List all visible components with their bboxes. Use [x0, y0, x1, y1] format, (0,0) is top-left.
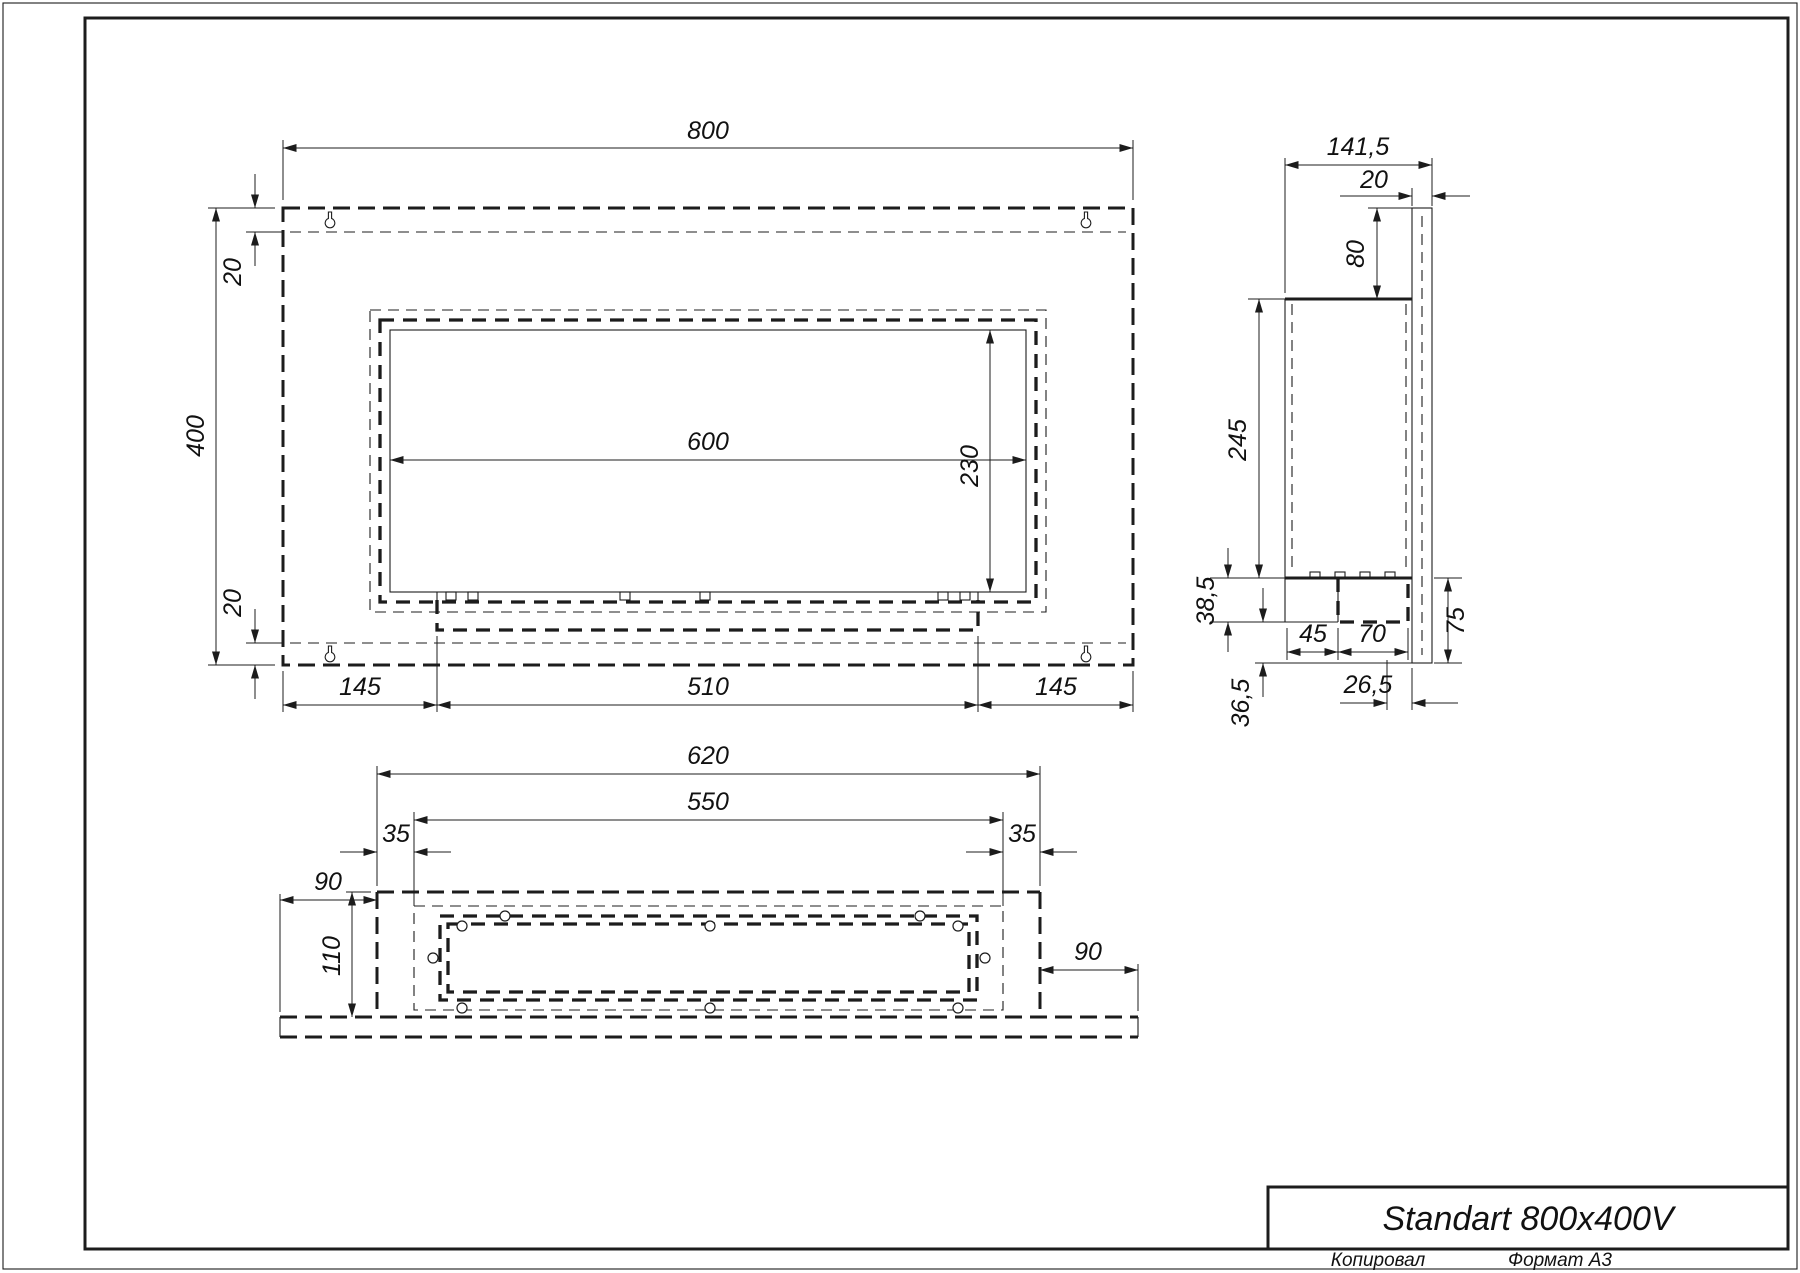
dim-opening-width: 600	[390, 428, 1026, 460]
dim-front-bottom-row: 145 510 145	[283, 636, 1133, 712]
dim-label: 36,5	[1227, 679, 1255, 728]
dim-label: 26,5	[1343, 671, 1393, 699]
screw-hole	[953, 921, 963, 931]
dim-label: 35	[1008, 820, 1036, 848]
dim-bottom-depth: 110	[318, 892, 371, 1017]
dim-side-tray-height: 38,5	[1192, 548, 1285, 652]
dim-front-bottom-inset: 20	[219, 589, 283, 699]
side-burner	[1338, 578, 1408, 622]
dim-bottom-flange-right: 90	[1040, 938, 1138, 1011]
inner-frame	[85, 18, 1788, 1249]
screw-hole	[980, 953, 990, 963]
dim-label: 510	[687, 673, 729, 701]
dim-label: 20	[219, 589, 247, 618]
burner-tabs	[446, 592, 970, 600]
dim-label: 145	[339, 673, 381, 701]
dim-label: 80	[1342, 240, 1370, 268]
screw-hole	[705, 921, 715, 931]
dim-label: 245	[1224, 419, 1252, 462]
dim-label: 145	[1035, 673, 1077, 701]
dim-label: 110	[318, 936, 346, 976]
dim-side-top-to-box: 80	[1342, 208, 1412, 299]
dim-bottom-insets: 35 35	[340, 820, 1077, 852]
side-view: 141,5 20 80 245 38,5	[1192, 133, 1470, 727]
dim-bottom-inner-width: 550	[414, 788, 1003, 906]
dim-opening-height: 230	[956, 330, 990, 592]
drawing-title: Standart 800x400V	[1382, 1200, 1676, 1238]
burner-box	[437, 600, 978, 630]
opening-frame-outer	[370, 310, 1046, 612]
dim-label: 141,5	[1327, 133, 1390, 161]
screw-hole	[500, 911, 510, 921]
screw-hole	[915, 911, 925, 921]
dim-label: 600	[687, 428, 729, 456]
dim-label: 35	[382, 820, 410, 848]
dim-side-box-height: 245	[1210, 299, 1285, 578]
dim-side-bottom-offset: 36,5	[1227, 588, 1412, 727]
page-frame	[3, 3, 1797, 1269]
dim-side-depth: 141,5	[1285, 133, 1432, 293]
bottom-view: 620 550 35 35 90 110	[280, 742, 1138, 1037]
front-view: 800 400 20 20 600	[182, 117, 1133, 712]
screw-hole	[953, 1003, 963, 1013]
dim-label: 20	[1359, 166, 1388, 194]
dim-front-width: 800	[283, 117, 1133, 200]
screw-hole	[428, 953, 438, 963]
dim-label: 620	[687, 742, 729, 770]
opening-glass-edge	[390, 330, 1026, 592]
footer-copied: Копировал	[1331, 1250, 1426, 1271]
dim-label: 45	[1299, 620, 1327, 648]
dim-label: 70	[1358, 620, 1386, 648]
technical-drawing: 800 400 20 20 600	[0, 0, 1800, 1273]
dim-label: 38,5	[1192, 577, 1220, 626]
title-block: Standart 800x400V	[1268, 1187, 1788, 1249]
footer-captions: Копировал Формат А3	[1331, 1250, 1613, 1271]
bottom-frame-inner	[448, 924, 969, 992]
screw-holes	[428, 911, 990, 1013]
dim-front-top-inset: 20	[219, 174, 283, 287]
dim-label: 75	[1442, 607, 1470, 635]
dim-side-panel-thickness: 20	[1340, 166, 1470, 206]
dim-side-panel-below: 75	[1434, 578, 1470, 663]
dim-label: 90	[1074, 938, 1102, 966]
dim-label: 230	[956, 445, 984, 488]
dim-label: 20	[219, 258, 247, 287]
dim-label: 800	[687, 117, 729, 145]
outer-border	[3, 3, 1797, 1269]
screw-hole	[457, 921, 467, 931]
footer-format: Формат А3	[1508, 1250, 1612, 1271]
dim-label: 550	[687, 788, 729, 816]
dim-label: 400	[182, 415, 210, 457]
screw-hole	[457, 1003, 467, 1013]
opening-frame-mid	[380, 320, 1036, 602]
dim-side-tray-row: 45 70	[1287, 620, 1408, 660]
screw-hole	[705, 1003, 715, 1013]
dim-label: 90	[314, 868, 342, 896]
dim-side-front-offset: 26,5	[1340, 660, 1458, 710]
